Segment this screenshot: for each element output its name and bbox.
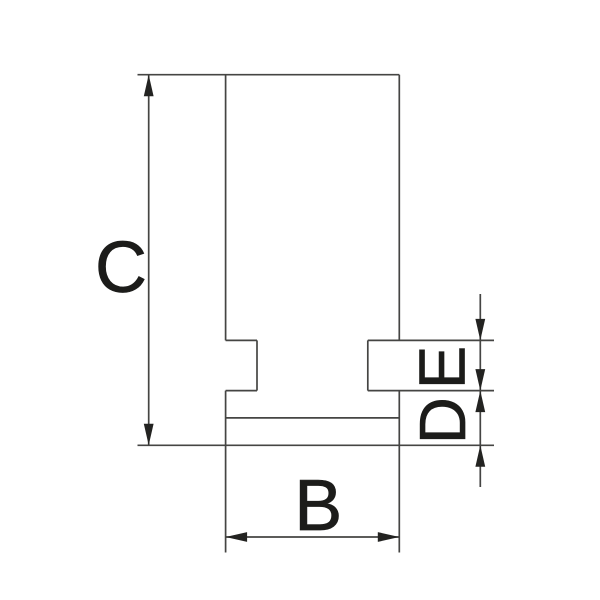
svg-text:B: B [294,466,342,546]
svg-text:E: E [406,346,479,389]
svg-text:D: D [406,397,479,444]
svg-text:C: C [95,228,147,308]
